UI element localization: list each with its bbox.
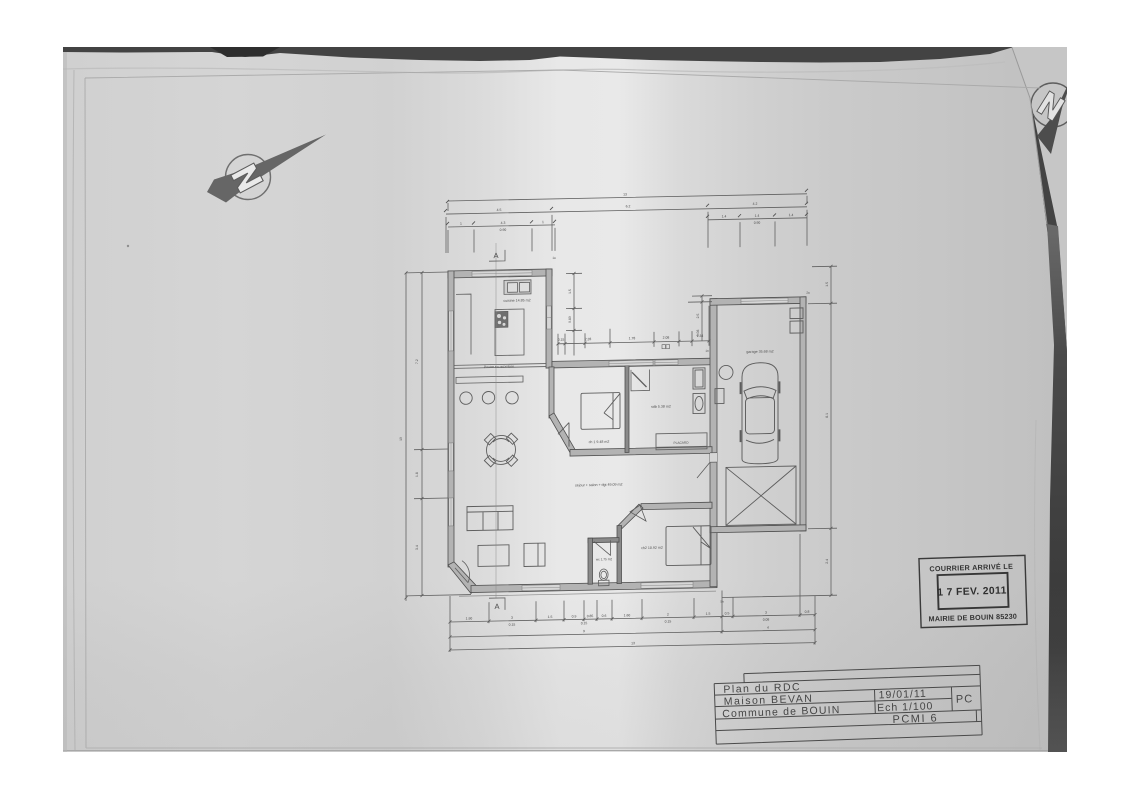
svg-text:1: 1 bbox=[460, 222, 462, 226]
svg-text:A: A bbox=[494, 602, 499, 611]
svg-text:1.5: 1.5 bbox=[825, 282, 829, 287]
svg-text:4.5: 4.5 bbox=[497, 208, 502, 212]
svg-text:sdb 5.38 m2: sdb 5.38 m2 bbox=[651, 405, 671, 409]
svg-text:1.5: 1.5 bbox=[548, 615, 553, 619]
svg-text:wc 1.75 m2: wc 1.75 m2 bbox=[596, 557, 613, 561]
svg-text:8.1: 8.1 bbox=[825, 413, 829, 418]
svg-text:1a: 1a bbox=[552, 256, 556, 260]
svg-text:2.08: 2.08 bbox=[663, 336, 670, 340]
svg-text:0.90: 0.90 bbox=[754, 221, 761, 225]
svg-text:0.90: 0.90 bbox=[500, 228, 507, 232]
svg-text:2.4: 2.4 bbox=[825, 559, 829, 564]
svg-text:1.90: 1.90 bbox=[466, 617, 473, 621]
svg-text:0.85: 0.85 bbox=[587, 614, 594, 618]
svg-text:3: 3 bbox=[765, 611, 767, 615]
svg-text:0.08: 0.08 bbox=[763, 618, 770, 622]
svg-text:0.80: 0.80 bbox=[568, 316, 572, 323]
svg-text:0.08: 0.08 bbox=[696, 330, 700, 337]
svg-text:A: A bbox=[493, 251, 498, 260]
svg-text:3: 3 bbox=[511, 616, 513, 620]
svg-text:5a: 5a bbox=[720, 599, 724, 603]
svg-text:0.6: 0.6 bbox=[602, 614, 607, 618]
svg-text:ch2 10.92 m2: ch2 10.92 m2 bbox=[641, 546, 663, 550]
svg-text:1.4: 1.4 bbox=[755, 214, 760, 218]
svg-text:1.8: 1.8 bbox=[415, 472, 419, 477]
svg-text:0.9: 0.9 bbox=[572, 614, 577, 618]
svg-text:cuisine 14.85 m2: cuisine 14.85 m2 bbox=[503, 298, 530, 303]
svg-text:1a: 1a bbox=[705, 349, 709, 353]
svg-text:0.15: 0.15 bbox=[581, 621, 588, 625]
svg-text:PLACARD: PLACARD bbox=[673, 441, 689, 445]
svg-text:0.5: 0.5 bbox=[725, 611, 730, 615]
svg-text:garage 35.68 m2: garage 35.68 m2 bbox=[746, 349, 773, 354]
svg-text:7.2: 7.2 bbox=[415, 359, 419, 364]
svg-text:2: 2 bbox=[667, 613, 669, 617]
svg-text:19/01/11: 19/01/11 bbox=[878, 688, 926, 702]
svg-text:6.2: 6.2 bbox=[626, 204, 631, 208]
svg-text:13: 13 bbox=[631, 641, 635, 645]
svg-text:1.4: 1.4 bbox=[789, 213, 794, 217]
svg-text:1: 1 bbox=[542, 220, 544, 224]
svg-text:Poutre en retombee: Poutre en retombee bbox=[484, 364, 514, 369]
svg-text:9: 9 bbox=[583, 629, 585, 633]
svg-text:0.15: 0.15 bbox=[665, 620, 672, 624]
svg-text:PC: PC bbox=[956, 693, 974, 706]
svg-text:2.28: 2.28 bbox=[585, 337, 592, 341]
svg-text:1.60: 1.60 bbox=[624, 613, 631, 617]
svg-text:4.3: 4.3 bbox=[501, 221, 506, 225]
svg-text:0.15: 0.15 bbox=[509, 623, 516, 627]
svg-text:1 7 FEV. 2011: 1 7 FEV. 2011 bbox=[937, 585, 1007, 598]
svg-text:1.4: 1.4 bbox=[722, 214, 727, 218]
svg-text:4: 4 bbox=[767, 626, 769, 630]
svg-text:1.78: 1.78 bbox=[629, 336, 636, 340]
svg-text:1.5: 1.5 bbox=[568, 289, 572, 294]
svg-text:3.4: 3.4 bbox=[415, 545, 419, 550]
svg-text:0.15: 0.15 bbox=[558, 338, 565, 342]
svg-text:1.5: 1.5 bbox=[706, 612, 711, 616]
svg-text:10: 10 bbox=[399, 437, 403, 441]
svg-text:PCMI 6: PCMI 6 bbox=[892, 712, 938, 726]
svg-text:4.2: 4.2 bbox=[753, 202, 758, 206]
svg-text:2a: 2a bbox=[806, 291, 810, 295]
svg-text:2.5: 2.5 bbox=[696, 313, 700, 318]
svg-text:13: 13 bbox=[623, 192, 627, 196]
svg-text:0.8: 0.8 bbox=[805, 610, 810, 614]
svg-text:ch 1 9.48 m2: ch 1 9.48 m2 bbox=[589, 440, 610, 444]
